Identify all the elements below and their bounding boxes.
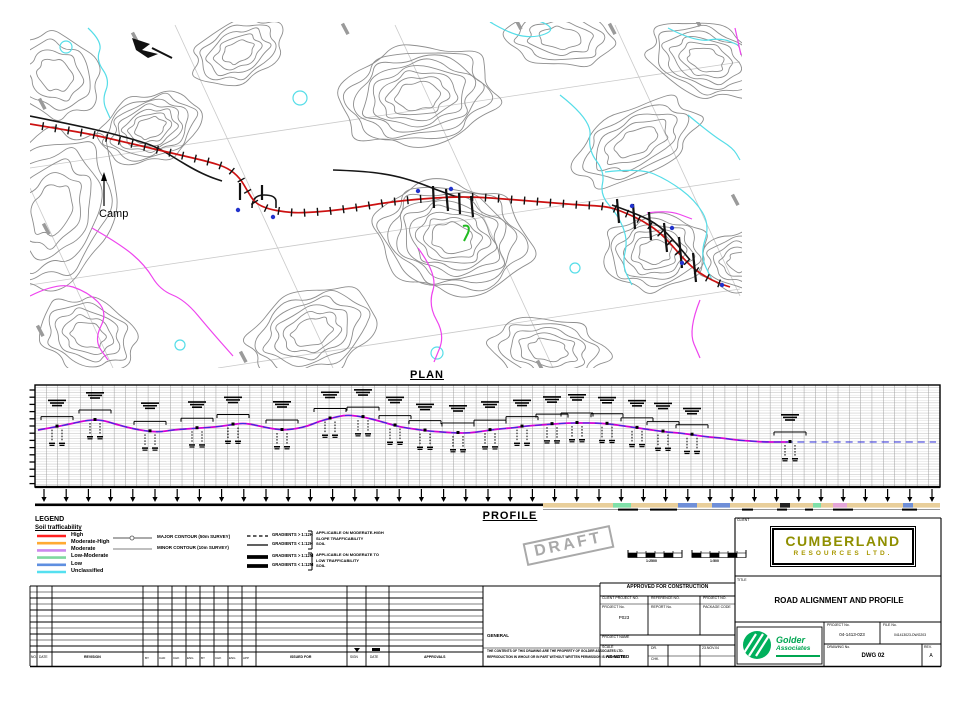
revision-col-small: CHK xyxy=(173,657,179,660)
sign-row-label: DR. xyxy=(651,647,657,651)
disclaimer-line2: REPRODUCTION IN WHOLE OR IN PART WITHOUT… xyxy=(487,656,626,659)
revision-col-small: CHK xyxy=(215,657,221,660)
project-no-label: PROJECT NO. xyxy=(703,597,726,601)
legend-gradient-note: SLOPE TRAFFICABILITY xyxy=(316,537,363,541)
legend-trafficability-label: High xyxy=(71,533,83,539)
cell-project-no-label: PROJECT No. xyxy=(602,606,625,610)
drawing-no-cell-label: DRAWING No. xyxy=(827,646,850,650)
legend-panel xyxy=(37,531,746,572)
cumberland-name: CUMBERLAND xyxy=(774,533,912,549)
plan-label: PLAN xyxy=(397,370,457,382)
file-no-cell-value: 041413023-DWG203 xyxy=(881,634,939,638)
project-no-cell-value: 04-1413-023 xyxy=(826,633,878,638)
reference-no-label: REFERENCE NO. xyxy=(651,597,680,601)
ground-profile-line xyxy=(38,415,788,442)
legend-contour-label: MINOR CONTOUR (10m SURVEY) xyxy=(157,546,229,551)
disclaimer-line1: THE CONTENTS OF THIS DRAWING ARE THE PRO… xyxy=(487,650,623,653)
legend-gradient-label: GRADIENTS > 1:12H xyxy=(272,533,313,537)
revision-col-small: CAD xyxy=(159,657,165,660)
project-no-cell-label: PROJECT No. xyxy=(827,624,850,628)
legend-trafficability-label: Unclassified xyxy=(71,569,103,575)
plan-map xyxy=(0,9,783,383)
revision-col-small: APP xyxy=(243,657,249,660)
cumberland-subname: RESOURCES LTD. xyxy=(774,550,912,557)
profile-panel xyxy=(30,385,941,511)
legend-gradient-label: GRADIENTS > 1:12M xyxy=(272,554,313,558)
legend-contour-label: MAJOR CONTOUR (50m SURVEY) xyxy=(157,535,230,540)
scale-bar-label: 1:2500 xyxy=(646,560,657,564)
camp-label: Camp xyxy=(99,209,128,221)
revision-col-date: DATE xyxy=(39,656,48,659)
legend-gradient-note: SOIL xyxy=(316,564,325,568)
cell-project-no-value: P023 xyxy=(602,616,646,621)
profile-label: PROFILE xyxy=(478,511,542,523)
legend-trafficability-label: Low-Moderate xyxy=(71,554,108,560)
revision-col-small: BY xyxy=(145,657,149,660)
legend-subtitle: Soil trafficability xyxy=(35,525,82,531)
sign-row-label: CHK. xyxy=(651,658,659,662)
revision-col-no: NO. xyxy=(31,656,37,659)
project-name-label: PROJECT NAME xyxy=(602,636,629,640)
rev-cell-label: REV. xyxy=(924,646,932,650)
title-label: TITLE xyxy=(737,579,747,583)
drawing-sheet: { "plan": { "label": "PLAN", "camp_label… xyxy=(0,0,960,720)
design-profile-line xyxy=(38,415,936,442)
drawing-graphics xyxy=(0,0,960,720)
disclaimer-heading: GENERAL xyxy=(487,634,509,639)
revision-col-date2: DATE xyxy=(370,656,378,659)
revision-col-issued: ISSUED FOR xyxy=(290,656,311,660)
client-project-no-label: CLIENT PROJECT NO. xyxy=(602,597,639,601)
rev-cell-value: A xyxy=(922,654,940,659)
cell-report-no-label: REPORT No. xyxy=(651,606,672,610)
legend-gradient-label: GRADIENTS < 1:12M xyxy=(272,563,313,567)
legend-gradient-note: APPLICABLE ON MODERATE-HIGH xyxy=(316,531,384,535)
sign-row-date: 23.NOV.04 xyxy=(702,647,719,651)
revision-col-small: ENG xyxy=(229,657,236,660)
legend-gradient-label: GRADIENTS < 1:12H xyxy=(272,542,313,546)
legend-trafficability-label: Moderate-High xyxy=(71,540,110,546)
file-no-cell-label: FILE No. xyxy=(883,624,897,628)
legend-title: LEGEND xyxy=(35,516,64,523)
legend-trafficability-label: Moderate xyxy=(71,547,95,553)
legend-gradient-note: APPLICABLE ON MODERATE TO xyxy=(316,553,379,557)
cell-package-code-label: PACKAGE CODE xyxy=(703,606,731,610)
revision-col-sign: SIGN xyxy=(350,656,358,659)
cumberland-logo: CUMBERLAND RESOURCES LTD. xyxy=(772,528,914,565)
drawing-title: ROAD ALIGNMENT AND PROFILE xyxy=(741,597,937,605)
revision-col-approvals: APPROVALS xyxy=(424,656,446,660)
road-alignment xyxy=(30,124,730,287)
golder-subname: Associates xyxy=(776,646,810,653)
client-label: CLIENT xyxy=(737,519,749,523)
revision-col-small: ENG xyxy=(187,657,194,660)
drawing-no-cell-value: DWG 02 xyxy=(826,653,920,659)
scale-bar-label: 1:500 xyxy=(710,560,719,564)
approved-for-construction-header: APPROVED FOR CONSTRUCTION xyxy=(600,585,735,590)
revision-col-revision: REVISION xyxy=(84,656,101,660)
revision-col-small: BY xyxy=(201,657,205,660)
legend-trafficability-label: Low xyxy=(71,562,82,568)
legend-gradient-note: LOW TRAFFICABILITY xyxy=(316,559,359,563)
legend-gradient-note: SOIL xyxy=(316,542,325,546)
